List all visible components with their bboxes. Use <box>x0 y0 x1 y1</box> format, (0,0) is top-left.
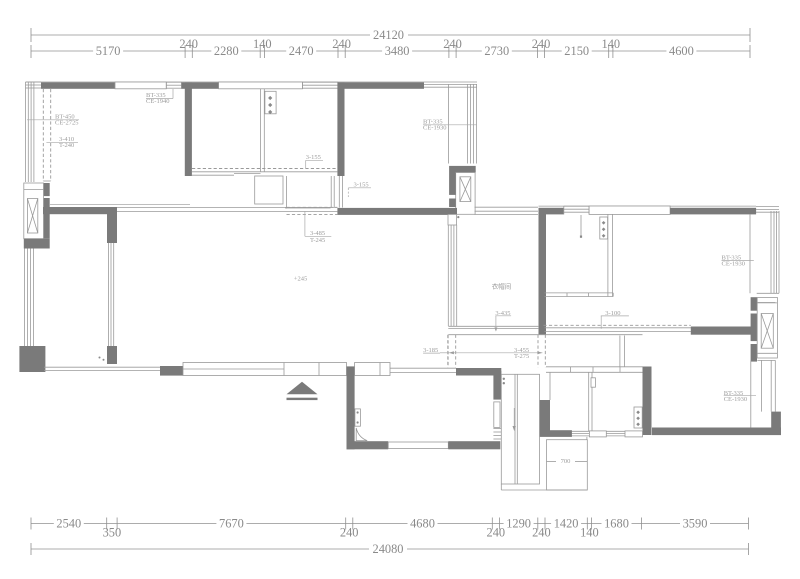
svg-text:240: 240 <box>179 37 198 51</box>
svg-text:T-275: T-275 <box>514 353 529 360</box>
svg-text:240: 240 <box>443 37 462 51</box>
svg-text:1290: 1290 <box>506 517 531 531</box>
svg-text:5170: 5170 <box>96 44 121 58</box>
svg-text:CE-1930: CE-1930 <box>724 396 747 403</box>
svg-text:衣帽间: 衣帽间 <box>492 282 512 291</box>
svg-text:3590: 3590 <box>683 517 708 531</box>
svg-text:CE-1930: CE-1930 <box>423 124 446 131</box>
svg-text:4600: 4600 <box>669 44 694 58</box>
svg-text:3480: 3480 <box>385 44 410 58</box>
svg-text:1420: 1420 <box>554 517 579 531</box>
svg-text:2470: 2470 <box>289 44 314 58</box>
svg-text:CE-1940: CE-1940 <box>146 98 169 105</box>
svg-text:140: 140 <box>253 37 272 51</box>
svg-text:240: 240 <box>532 37 551 51</box>
svg-text:24080: 24080 <box>373 542 404 556</box>
svg-text:700: 700 <box>561 458 571 465</box>
svg-text:2540: 2540 <box>56 517 81 531</box>
svg-text:T-245: T-245 <box>310 237 325 244</box>
svg-text:7670: 7670 <box>219 517 244 531</box>
svg-text:2730: 2730 <box>484 44 509 58</box>
svg-text:240: 240 <box>332 37 351 51</box>
svg-text:+245: +245 <box>294 275 307 282</box>
svg-text:240: 240 <box>532 526 551 540</box>
svg-text:140: 140 <box>602 37 621 51</box>
svg-text:T-240: T-240 <box>59 142 74 149</box>
svg-text:CE-2725: CE-2725 <box>55 119 78 126</box>
svg-text:140: 140 <box>580 526 599 540</box>
svg-text:4680: 4680 <box>410 517 435 531</box>
svg-text:240: 240 <box>487 526 506 540</box>
svg-text:CE-1930: CE-1930 <box>722 260 745 267</box>
svg-text:2280: 2280 <box>214 44 239 58</box>
svg-text:240: 240 <box>340 526 359 540</box>
svg-text:24120: 24120 <box>373 28 404 42</box>
svg-text:2150: 2150 <box>564 44 589 58</box>
svg-text:1680: 1680 <box>604 517 629 531</box>
svg-text:350: 350 <box>103 526 122 540</box>
